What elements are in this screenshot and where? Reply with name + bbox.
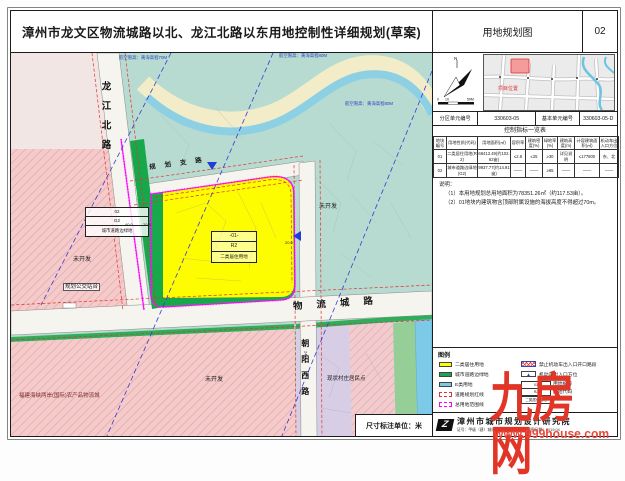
- location-minimap: 项目位置: [483, 54, 615, 111]
- svg-text:N: N: [454, 56, 457, 61]
- parcel-01-no: -01-: [212, 232, 256, 242]
- parcel-02-use: 城市道路边绿地: [86, 226, 148, 236]
- logistics-city-label: 福建海峡两岸(国际)农产品物流城: [19, 393, 100, 399]
- legend-mark-no-entry: 禁止机动车出入口开口路段: [521, 359, 597, 369]
- dimension-d3: 20.0: [285, 241, 293, 245]
- watermark-url: www.999house.com: [494, 426, 609, 441]
- parcel-02-no: 02: [86, 208, 148, 217]
- watermark-text: 九房网: [490, 372, 598, 478]
- title-bar: 漳州市龙文区物流城路以北、龙江北路以东用地控制性详细规划(草案) 用地规划图 0…: [11, 11, 617, 53]
- site-boundary-swatch-icon: [439, 402, 452, 407]
- parcel-01-label-box: -01- R2 二类居住用地: [211, 231, 257, 263]
- panel-top: N 0 10 50M: [433, 53, 617, 112]
- dimension-d1: 40.0: [125, 223, 133, 227]
- legend-item-residential: 二类居住用地: [439, 359, 489, 369]
- svg-text:50M: 50M: [467, 98, 474, 102]
- svg-text:0: 0: [437, 98, 439, 102]
- village-label: 现状村庄居民点: [327, 376, 366, 382]
- road-label-chaoyang: 朝阳西路: [300, 339, 309, 403]
- sheet-number: 02: [583, 11, 617, 52]
- notes: 说明： （1）本用地规划总用地面积为78351.26㎡（约117.53亩）。 （…: [433, 178, 617, 209]
- road-label-longjiang: 龙江北路: [99, 81, 109, 159]
- unit-number-row: 分区单元编号 330603-05 基本单元编号 330603-05-D: [433, 112, 617, 126]
- project-site-marker: [511, 59, 529, 73]
- drawing-name: 用地规划图: [433, 11, 583, 52]
- table-header-row: 地块编号用地性质(代码) 用地面积(㎡)容积率 建筑密度(%)绿地率(%) 建筑…: [434, 137, 619, 150]
- table-row: 02城市道路边绿地(G2) 9937.77(约14.91亩)—— ——≥65 —…: [434, 164, 619, 178]
- undeveloped-zone-south: [11, 329, 296, 436]
- no-entry-icon: [521, 361, 536, 367]
- dimension-d4: 24.0: [303, 351, 307, 359]
- parcel-01-use: 二类居住用地: [212, 252, 256, 262]
- road-redline-swatch-icon: [439, 392, 452, 397]
- legend-item-road-redline: 道路规划红线: [439, 389, 489, 399]
- parcel-01-code: R2: [212, 242, 256, 252]
- plan-map: 航空限高：黄海高程70M 航空限高：黄海高程80M 航空限高：黄海高程80M 龙…: [11, 53, 433, 436]
- zone-unit-label: 分区单元编号: [433, 112, 478, 125]
- institute-logo: Z: [436, 419, 455, 431]
- water-swatch-icon: [439, 382, 452, 387]
- page-title: 漳州市龙文区物流城路以北、龙江北路以东用地控制性详细规划(草案): [11, 11, 433, 52]
- zone-unit-value: 330603-05: [478, 112, 536, 125]
- bus-stop-label: 规划公交站台: [63, 283, 100, 291]
- north-arrow-icon: N 0 10 50M: [436, 55, 482, 109]
- legend-item-road-green: 城市道路边绿地: [439, 369, 489, 379]
- table-row: 01二类居住用地(R2) 68413.49(约102.62亩)≤2.6 ≤25≥…: [434, 150, 619, 164]
- parcel-02-label-box: 02 G2 城市道路边绿地: [85, 207, 149, 237]
- legend-item-water: E类用地: [439, 379, 489, 389]
- project-location-label: 项目位置: [498, 85, 518, 92]
- bus-stop-shape: [63, 303, 76, 308]
- airspace-limit-80b-label: 航空限高：黄海高程80M: [345, 102, 393, 107]
- compass: N 0 10 50M: [436, 55, 482, 109]
- note-line-1: （1）本用地规划总用地面积为78351.26㎡（约117.53亩）。: [439, 190, 611, 199]
- legend-title: 图例: [438, 350, 450, 359]
- indicator-table-title: 控制指标一览表: [433, 126, 617, 136]
- undeveloped-label-west: 未开发: [73, 257, 91, 264]
- road-green-swatch-icon: [439, 372, 452, 377]
- basic-unit-value: 330603-05-D: [580, 112, 618, 125]
- svg-text:10: 10: [445, 98, 449, 102]
- dimension-d2: 20.5: [143, 223, 151, 227]
- unit-note: 尺寸标注单位：米: [355, 414, 432, 436]
- parcel-02-code: G2: [86, 217, 148, 226]
- airspace-limit-70-label: 航空限高：黄海高程70M: [119, 56, 167, 61]
- note-line-2: （2）01地块内建筑物含顶部附属设施的海拔高度不得超过70m。: [439, 199, 611, 208]
- undeveloped-label-east: 未开发: [319, 204, 337, 211]
- residential-swatch-icon: [439, 362, 452, 367]
- basic-unit-label: 基本单元编号: [536, 112, 579, 125]
- airspace-limit-80-label: 航空限高：黄海高程80M: [279, 54, 327, 59]
- scale-bar: 0 10 50M: [437, 98, 474, 105]
- notes-heading: 说明：: [439, 181, 611, 190]
- undeveloped-label-south: 未开发: [205, 377, 223, 384]
- legend-item-site-boundary: 总用地范围线: [439, 399, 489, 409]
- indicator-table: 地块编号用地性质(代码) 用地面积(㎡)容积率 建筑密度(%)绿地率(%) 建筑…: [433, 136, 619, 178]
